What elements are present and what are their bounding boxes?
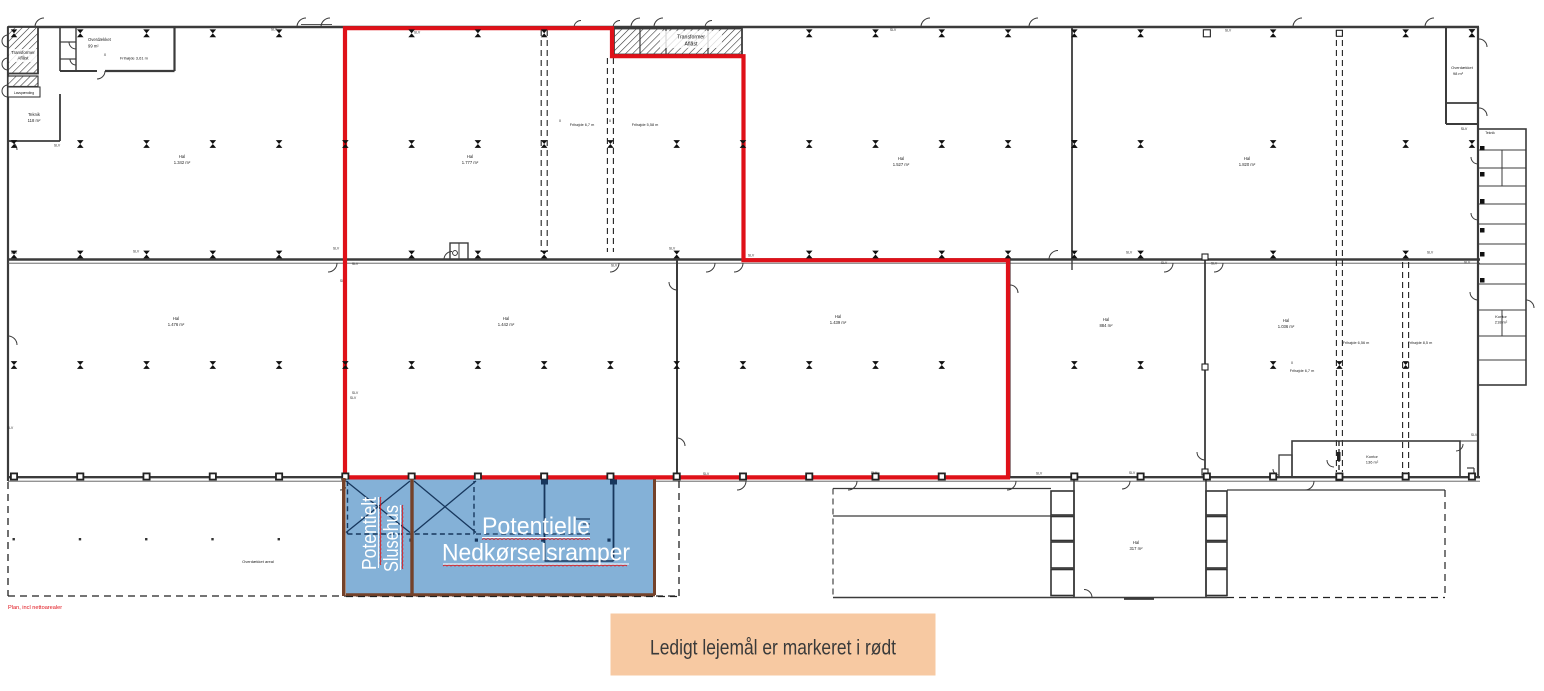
svg-text:317 m²: 317 m² bbox=[1129, 546, 1143, 551]
svg-text:Transformer: Transformer bbox=[11, 50, 35, 55]
svg-text:SLV: SLV bbox=[333, 247, 340, 251]
svg-text:SLV: SLV bbox=[1036, 472, 1043, 476]
svg-text:Plan, incl nettoarealer: Plan, incl nettoarealer bbox=[8, 605, 62, 611]
svg-text:Teknik: Teknik bbox=[1485, 131, 1495, 135]
svg-text:1.439 m²: 1.439 m² bbox=[830, 320, 847, 325]
svg-text:Aflåst: Aflåst bbox=[685, 41, 699, 48]
svg-text:SLV: SLV bbox=[669, 247, 676, 251]
svg-text:Ledigt lejemål er markeret i r: Ledigt lejemål er markeret i rødt bbox=[650, 637, 896, 660]
svg-text:SLV: SLV bbox=[1461, 127, 1468, 131]
svg-text:Frihøjde 8,5 m: Frihøjde 8,5 m bbox=[1408, 341, 1432, 345]
svg-text:Frihøjde 6,7 m: Frihøjde 6,7 m bbox=[1290, 369, 1314, 373]
svg-text:Transformer: Transformer bbox=[677, 35, 705, 41]
svg-text:Frihøjde 6,7 m: Frihøjde 6,7 m bbox=[570, 123, 594, 127]
svg-text:1.476 m²: 1.476 m² bbox=[168, 322, 185, 327]
svg-text:Overdækket areal: Overdækket areal bbox=[242, 559, 274, 564]
svg-text:Overdækket: Overdækket bbox=[1451, 65, 1474, 70]
svg-text:Hal: Hal bbox=[898, 156, 904, 161]
svg-text:SLV: SLV bbox=[352, 391, 359, 395]
svg-text:Aflåst: Aflåst bbox=[18, 56, 30, 61]
svg-text:SLV: SLV bbox=[133, 250, 140, 254]
svg-text:Hal: Hal bbox=[1244, 156, 1250, 161]
svg-text:Hal: Hal bbox=[1283, 318, 1289, 323]
svg-text:SLV: SLV bbox=[1464, 261, 1471, 265]
svg-text:218 m²: 218 m² bbox=[1495, 320, 1508, 325]
svg-text:SLV: SLV bbox=[352, 262, 359, 266]
svg-text:Frihøjde 6,56 m: Frihøjde 6,56 m bbox=[1343, 341, 1370, 345]
svg-text:98 m²: 98 m² bbox=[1453, 71, 1464, 76]
svg-text:SLV: SLV bbox=[890, 28, 897, 32]
svg-text:SLV: SLV bbox=[748, 254, 755, 258]
svg-text:1.820 m²: 1.820 m² bbox=[1239, 162, 1256, 167]
svg-text:1.442 m²: 1.442 m² bbox=[498, 322, 515, 327]
svg-text:99 m²: 99 m² bbox=[88, 44, 99, 49]
svg-text:Lavspænding: Lavspænding bbox=[14, 91, 34, 95]
svg-text:Potentielt: Potentielt bbox=[359, 497, 381, 570]
svg-text:Hal: Hal bbox=[1133, 540, 1139, 545]
svg-text:118 m²: 118 m² bbox=[28, 118, 41, 123]
svg-text:Frihøjde 5,58 m: Frihøjde 5,58 m bbox=[632, 123, 659, 127]
svg-text:Hal: Hal bbox=[467, 154, 473, 159]
svg-text:Slusehus: Slusehus bbox=[381, 505, 403, 572]
svg-text:SLV: SLV bbox=[1211, 262, 1218, 266]
svg-text:Hal: Hal bbox=[173, 316, 179, 321]
svg-text:SLV: SLV bbox=[1471, 433, 1478, 437]
svg-text:Hal: Hal bbox=[179, 154, 185, 159]
svg-text:Potentielle: Potentielle bbox=[482, 513, 590, 540]
svg-text:Nedkørselsramper: Nedkørselsramper bbox=[442, 540, 630, 567]
svg-text:Hal: Hal bbox=[1103, 317, 1109, 322]
svg-text:SLV: SLV bbox=[611, 264, 618, 268]
svg-text:SLV: SLV bbox=[1129, 471, 1136, 475]
svg-text:Kontor: Kontor bbox=[1366, 454, 1378, 459]
svg-text:1.342 m²: 1.342 m² bbox=[174, 160, 191, 165]
svg-text:SLV: SLV bbox=[1161, 261, 1168, 265]
svg-text:1.527 m²: 1.527 m² bbox=[893, 162, 910, 167]
svg-text:Teknik: Teknik bbox=[28, 112, 41, 117]
svg-text:SLV: SLV bbox=[1427, 251, 1434, 255]
svg-text:SLV: SLV bbox=[1225, 29, 1232, 33]
svg-text:SLV: SLV bbox=[1126, 251, 1133, 255]
svg-text:Kontor: Kontor bbox=[1495, 314, 1507, 319]
svg-text:SLV: SLV bbox=[54, 144, 61, 148]
svg-text:884 m²: 884 m² bbox=[1099, 323, 1113, 328]
svg-text:Frihøjde 3,61 m: Frihøjde 3,61 m bbox=[120, 56, 149, 61]
svg-text:SLV: SLV bbox=[7, 426, 14, 430]
svg-text:Overdækket: Overdækket bbox=[88, 37, 112, 42]
svg-text:1.036 m²: 1.036 m² bbox=[1278, 324, 1295, 329]
svg-text:136 m²: 136 m² bbox=[1366, 460, 1379, 465]
svg-text:SLV: SLV bbox=[414, 31, 421, 35]
svg-text:Hal: Hal bbox=[835, 314, 841, 319]
svg-text:1.777 m²: 1.777 m² bbox=[462, 160, 479, 165]
svg-text:Hal: Hal bbox=[503, 316, 509, 321]
svg-text:SLV: SLV bbox=[350, 396, 357, 400]
